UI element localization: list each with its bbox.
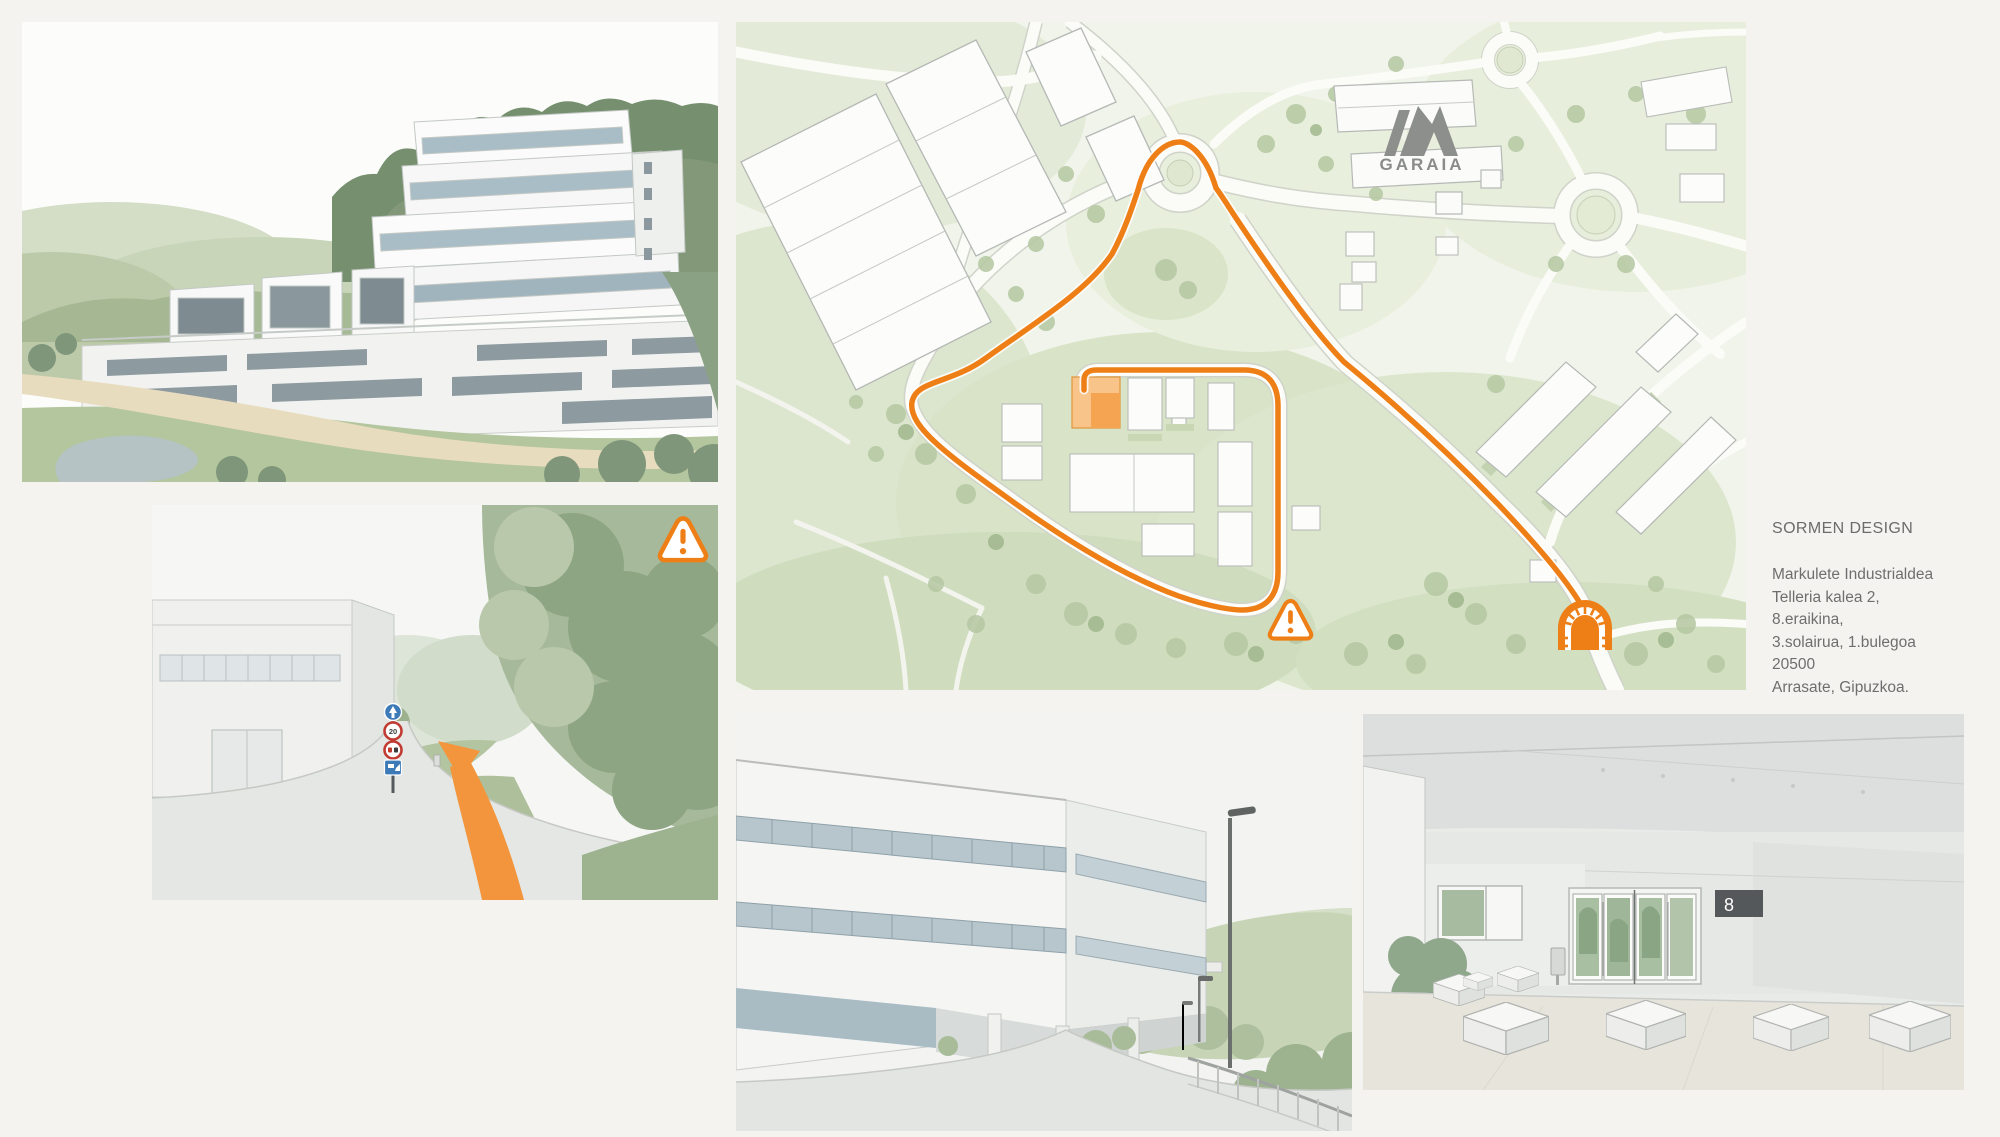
ahead-only-sign	[385, 704, 402, 721]
address-line: 3.solairua, 1.bulegoa	[1772, 632, 1987, 655]
company-name: SORMEN DESIGN	[1772, 520, 1987, 538]
speed-limit-sign: 20	[385, 723, 402, 740]
building-corner-illustration-svg	[736, 712, 1352, 1131]
svg-text:8: 8	[1724, 895, 1734, 915]
garaia-label: GARAIA	[1379, 155, 1464, 174]
address: Markulete Industrialdea Telleria kalea 2…	[1772, 564, 1987, 699]
entrance-illustration-svg: 8	[1363, 714, 1964, 1090]
address-line: 20500	[1772, 654, 1987, 677]
no-overtaking-sign	[385, 742, 402, 759]
campus-illustration-svg	[22, 22, 718, 482]
site-map-svg: GARAIA	[736, 22, 1746, 690]
svg-text:20: 20	[389, 727, 397, 736]
page: { "page": { "background_color": "#f5f3ef…	[0, 0, 2000, 1137]
blue-info-sign	[385, 760, 402, 775]
contact-block: SORMEN DESIGN Markulete Industrialdea Te…	[1772, 520, 1987, 699]
approach-illustration-svg: 20	[152, 505, 718, 900]
address-line: Telleria kalea 2,	[1772, 587, 1987, 610]
site-map: GARAIA	[736, 22, 1746, 690]
destination-building-highlight	[1072, 377, 1120, 428]
trash-bin	[1551, 948, 1565, 975]
campus-illustration	[22, 22, 718, 482]
entrance-illustration: 8	[1363, 714, 1964, 1090]
address-line: Markulete Industrialdea	[1772, 564, 1987, 587]
entrance-doors	[1569, 888, 1701, 984]
approach-illustration: 20	[152, 505, 718, 900]
building-number-sign: 8	[1715, 890, 1763, 917]
address-line: Arrasate, Gipuzkoa.	[1772, 677, 1987, 700]
building-corner-illustration	[736, 712, 1352, 1131]
address-line: 8.eraikina,	[1772, 609, 1987, 632]
